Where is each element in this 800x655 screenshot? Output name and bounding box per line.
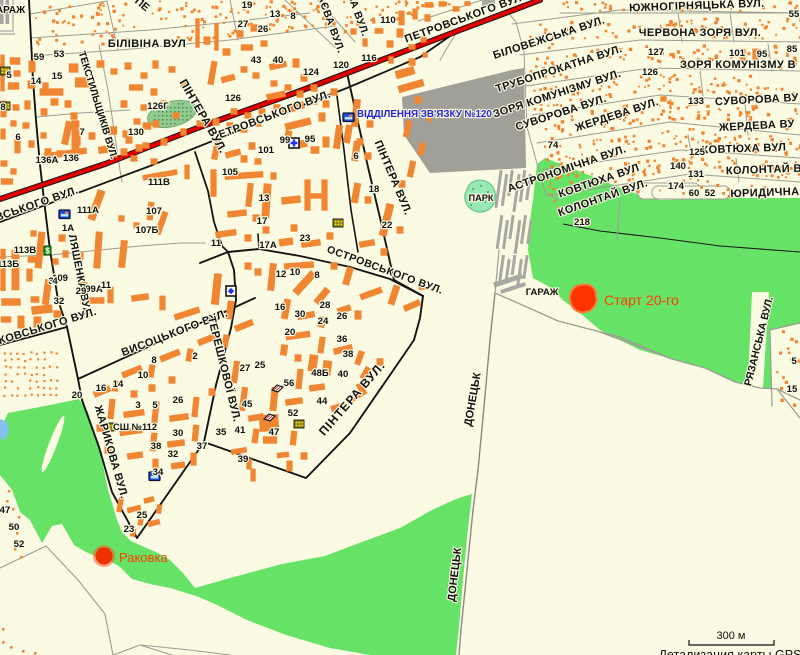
svg-text:113В: 113В: [14, 245, 36, 256]
svg-text:КОЛОНТАЙ В: КОЛОНТАЙ В: [726, 162, 800, 178]
svg-text:140: 140: [670, 161, 686, 172]
svg-text:5: 5: [791, 356, 797, 367]
svg-text:5: 5: [152, 400, 158, 411]
svg-text:110: 110: [380, 15, 395, 26]
svg-text:44: 44: [317, 396, 328, 407]
svg-text:17А: 17А: [259, 240, 277, 251]
svg-text:131: 131: [688, 169, 705, 180]
svg-text:60: 60: [689, 188, 700, 199]
svg-text:ПАРК: ПАРК: [469, 193, 494, 203]
svg-text:7: 7: [79, 127, 84, 138]
svg-text:35: 35: [216, 427, 227, 438]
svg-text:48Б: 48Б: [311, 368, 329, 379]
svg-text:36: 36: [337, 334, 348, 345]
svg-text:50: 50: [9, 522, 20, 533]
svg-text:29: 29: [76, 286, 87, 297]
svg-text:38: 38: [343, 349, 354, 360]
svg-text:174: 174: [668, 181, 685, 192]
svg-text:107: 107: [146, 206, 162, 217]
svg-text:2: 2: [192, 351, 197, 362]
svg-text:27: 27: [238, 19, 249, 30]
svg-text:136: 136: [63, 153, 79, 164]
svg-text:47: 47: [269, 427, 280, 438]
svg-text:Раковка: Раковка: [119, 550, 168, 565]
svg-text:32: 32: [168, 449, 179, 460]
svg-text:5: 5: [6, 70, 12, 81]
svg-text:101: 101: [258, 145, 275, 156]
svg-text:4: 4: [52, 276, 58, 287]
svg-text:116: 116: [361, 53, 376, 64]
svg-text:218: 218: [574, 217, 591, 228]
svg-text:13: 13: [259, 193, 270, 204]
svg-text:11: 11: [211, 238, 222, 249]
svg-text:6: 6: [15, 132, 20, 143]
svg-text:124: 124: [303, 67, 320, 78]
svg-text:52: 52: [14, 539, 25, 550]
svg-text:ЧЕРВОНА ЗОРЯ ВУЛ.: ЧЕРВОНА ЗОРЯ ВУЛ.: [639, 27, 761, 39]
svg-text:14: 14: [31, 76, 42, 87]
svg-text:32: 32: [54, 296, 65, 307]
svg-text:30: 30: [295, 309, 306, 320]
svg-text:38: 38: [151, 441, 162, 452]
svg-text:БІЛІВІНА ВУЛ: БІЛІВІНА ВУЛ: [108, 38, 186, 50]
svg-text:45: 45: [242, 399, 253, 410]
svg-text:25: 25: [255, 360, 266, 371]
svg-text:13: 13: [270, 9, 281, 20]
svg-text:95: 95: [757, 49, 768, 60]
svg-text:23: 23: [124, 524, 135, 535]
svg-text:59: 59: [34, 52, 45, 63]
svg-text:12: 12: [276, 269, 287, 280]
svg-text:47: 47: [0, 505, 10, 516]
svg-text:125: 125: [689, 147, 706, 158]
svg-text:126: 126: [225, 93, 241, 104]
svg-text:126: 126: [642, 67, 658, 78]
svg-text:ЮРИДИЧНА: ЮРИДИЧНА: [730, 186, 800, 200]
svg-text:37: 37: [197, 441, 208, 452]
svg-text:16: 16: [96, 383, 107, 394]
svg-text:20: 20: [285, 327, 296, 338]
svg-text:17: 17: [257, 216, 268, 227]
svg-text:Детализация карты GPS: Детализация карты GPS: [659, 648, 800, 655]
svg-text:3: 3: [135, 400, 140, 411]
svg-text:25: 25: [137, 510, 148, 521]
svg-text:10: 10: [138, 370, 149, 381]
svg-text:24: 24: [318, 316, 329, 327]
svg-text:8: 8: [0, 102, 6, 113]
svg-text:11: 11: [101, 280, 112, 291]
svg-text:111В: 111В: [148, 177, 170, 188]
svg-text:39: 39: [238, 454, 249, 465]
svg-text:23: 23: [300, 233, 311, 244]
svg-text:$: $: [45, 247, 50, 256]
svg-text:30: 30: [173, 428, 184, 439]
svg-text:18: 18: [369, 184, 380, 195]
svg-text:СШ №112: СШ №112: [113, 422, 157, 432]
svg-text:19: 19: [242, 0, 253, 11]
svg-text:130: 130: [128, 127, 144, 138]
svg-text:40: 40: [338, 369, 349, 380]
svg-text:56: 56: [284, 378, 295, 389]
svg-text:105: 105: [222, 167, 239, 178]
svg-text:43: 43: [251, 55, 262, 66]
svg-text:53: 53: [54, 49, 65, 60]
svg-text:Старт 20-го: Старт 20-го: [604, 292, 679, 308]
svg-text:15: 15: [787, 384, 798, 395]
svg-text:41: 41: [235, 425, 246, 436]
svg-text:34: 34: [153, 467, 164, 478]
svg-text:ВІДДІЛЕННЯ ЗВ'ЯЗКУ №120: ВІДДІЛЕННЯ ЗВ'ЯЗКУ №120: [357, 109, 492, 120]
svg-text:99: 99: [280, 135, 291, 146]
svg-text:136А: 136А: [36, 155, 59, 166]
svg-text:52: 52: [288, 408, 299, 419]
svg-text:101: 101: [729, 48, 746, 59]
svg-text:22: 22: [382, 220, 393, 231]
svg-text:107Б: 107Б: [136, 225, 159, 236]
svg-text:14: 14: [113, 379, 124, 390]
svg-text:ГАРАЖ: ГАРАЖ: [0, 5, 26, 16]
svg-text:52: 52: [705, 188, 716, 199]
svg-text:10: 10: [290, 267, 301, 278]
svg-text:120: 120: [333, 60, 349, 71]
svg-text:40: 40: [273, 55, 284, 66]
svg-text:ГАРАЖ: ГАРАЖ: [526, 287, 559, 298]
svg-text:126Г: 126Г: [147, 101, 169, 112]
svg-text:127: 127: [648, 47, 664, 58]
svg-text:113Б: 113Б: [0, 259, 19, 270]
svg-text:1А: 1А: [62, 223, 74, 234]
svg-text:8: 8: [314, 270, 320, 281]
svg-text:28: 28: [320, 300, 331, 311]
svg-text:74: 74: [548, 140, 559, 151]
svg-text:300 м: 300 м: [717, 630, 746, 642]
svg-text:111А: 111А: [77, 205, 99, 216]
svg-text:55: 55: [789, 9, 800, 20]
svg-text:85: 85: [787, 44, 798, 55]
svg-text:ЗОРЯ КОМУНІЗМУ В: ЗОРЯ КОМУНІЗМУ В: [680, 59, 796, 71]
svg-text:26: 26: [258, 24, 269, 35]
svg-text:6: 6: [353, 151, 358, 162]
svg-text:20: 20: [72, 390, 83, 401]
svg-text:8: 8: [290, 11, 296, 22]
svg-text:16: 16: [275, 302, 286, 313]
svg-text:26: 26: [337, 311, 348, 322]
svg-text:95: 95: [305, 134, 316, 145]
svg-text:8: 8: [151, 355, 157, 366]
svg-text:26: 26: [173, 395, 184, 406]
svg-text:27: 27: [240, 363, 251, 374]
svg-text:133: 133: [688, 96, 704, 107]
svg-text:15: 15: [52, 71, 63, 82]
